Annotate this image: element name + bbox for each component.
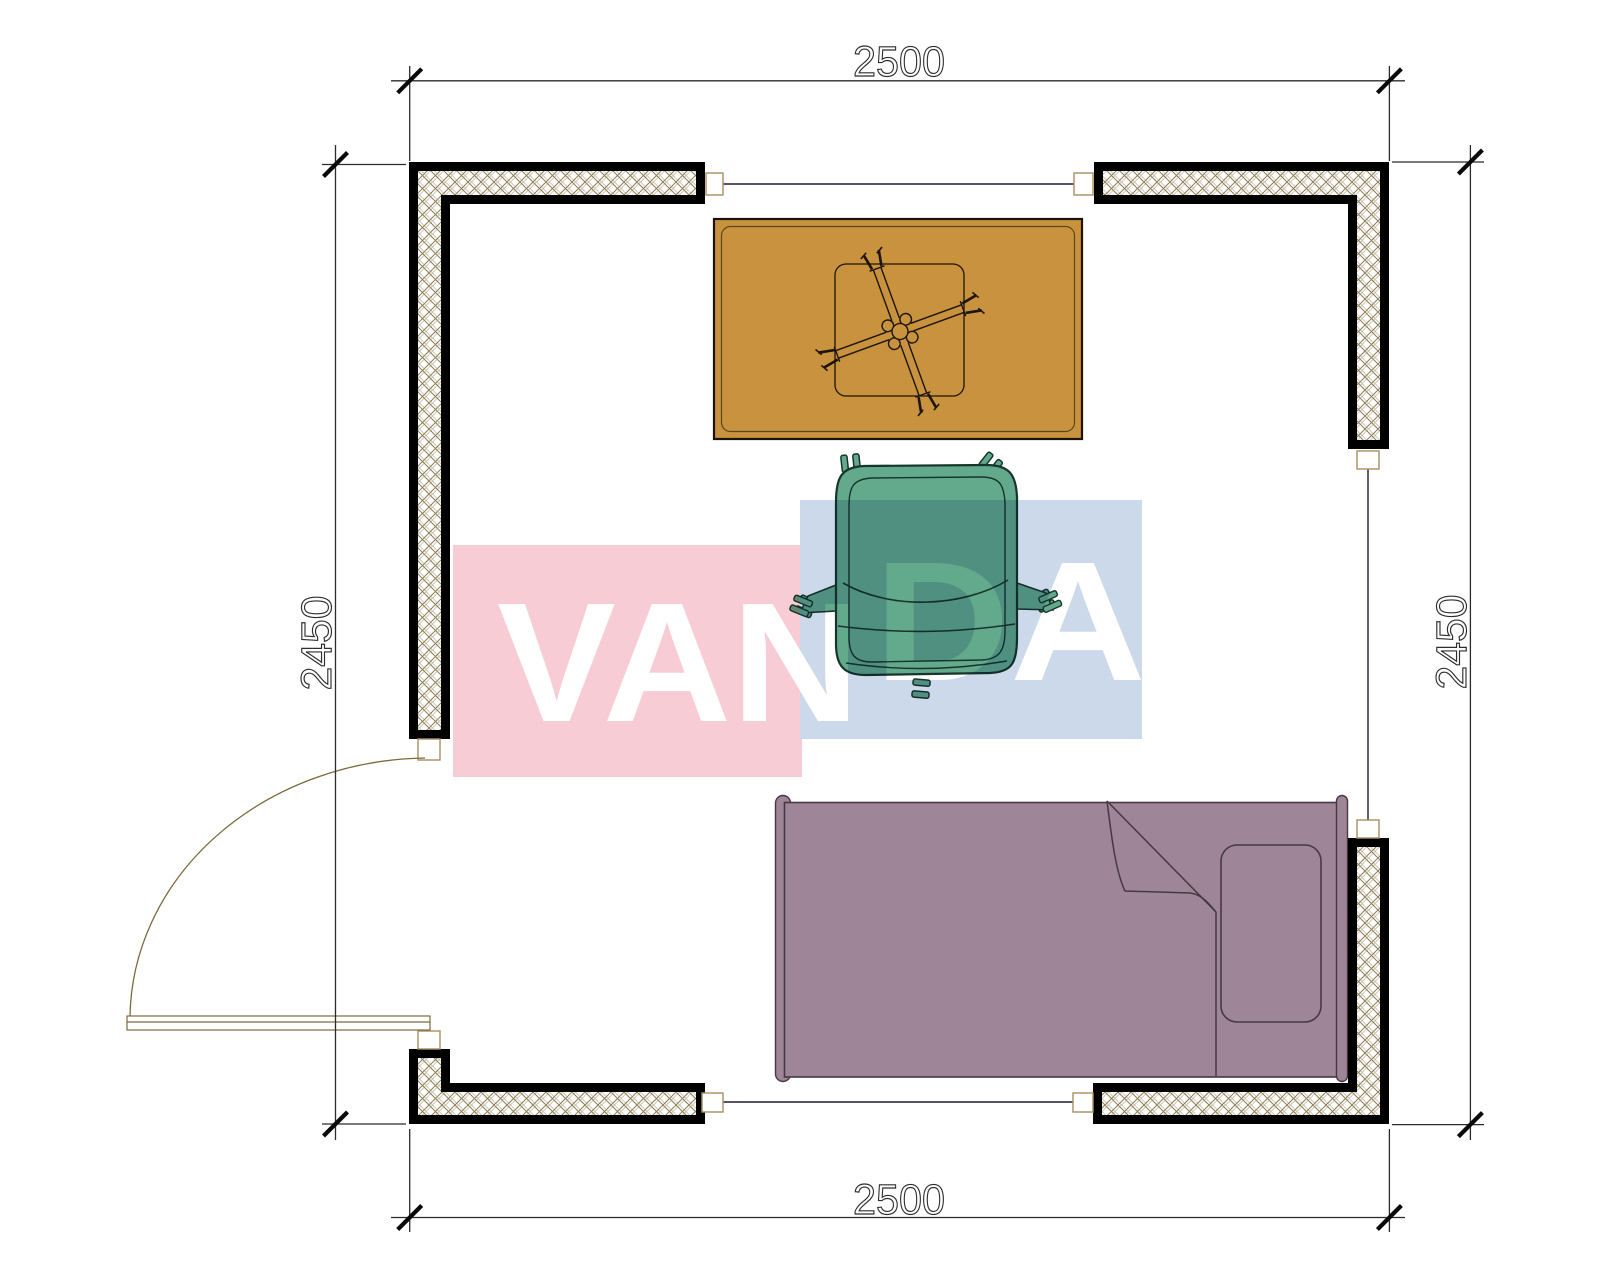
svg-text:2450: 2450: [293, 596, 341, 691]
svg-text:2500: 2500: [853, 1176, 945, 1224]
svg-text:2450: 2450: [1428, 595, 1476, 690]
svg-text:2500: 2500: [853, 38, 945, 86]
